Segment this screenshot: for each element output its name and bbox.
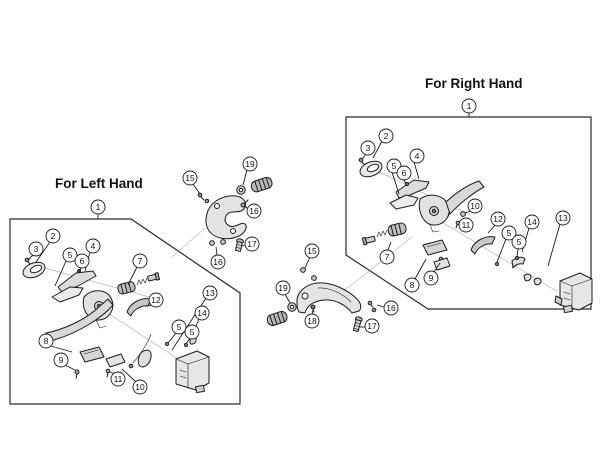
callout-balloon-6: 6 xyxy=(75,254,89,268)
callout-number-14: 14 xyxy=(527,217,537,227)
callout-balloon-10: 10 xyxy=(468,199,482,213)
left-hand-label: For Left Hand xyxy=(55,176,143,191)
cover-part-12 xyxy=(127,299,151,316)
callout-leader-19 xyxy=(285,294,290,303)
callout-number-4: 4 xyxy=(91,241,96,251)
callout-leader-17 xyxy=(242,245,245,246)
callout-leader-19 xyxy=(243,170,247,185)
callout-number-5: 5 xyxy=(507,228,512,238)
barrel-adjuster-part-7 xyxy=(362,222,407,245)
right-group-boundary xyxy=(346,117,591,309)
screw-part-3 xyxy=(359,158,365,165)
callout-number-1: 1 xyxy=(467,101,472,111)
callout-number-6: 6 xyxy=(402,168,407,178)
callout-number-5: 5 xyxy=(177,322,182,332)
callout-number-6: 6 xyxy=(80,256,85,266)
callout-number-2: 2 xyxy=(51,231,56,241)
callout-balloon-4: 4 xyxy=(86,239,100,253)
callout-balloon-11: 11 xyxy=(459,218,473,232)
clamp-bolt-part-17 xyxy=(235,238,244,251)
clamp-band-part xyxy=(297,283,361,313)
shifter-unit-part-13 xyxy=(176,351,209,393)
clamp-band-part xyxy=(206,196,246,239)
callout-number-11: 11 xyxy=(462,220,471,230)
bracket-part-10 xyxy=(106,354,125,367)
nut-part-10 xyxy=(461,212,466,217)
callout-number-3: 3 xyxy=(34,244,39,254)
callout-leader-4 xyxy=(414,162,419,179)
screw-part-9 xyxy=(75,370,79,378)
callout-leader-15 xyxy=(193,184,200,194)
callout-balloon-3: 3 xyxy=(361,141,375,155)
small-lever-part-14 xyxy=(496,257,526,269)
callout-balloon-15: 15 xyxy=(183,171,197,185)
callout-balloon-10: 10 xyxy=(133,380,147,394)
callout-number-1: 1 xyxy=(96,202,101,212)
hook-parts xyxy=(524,274,541,285)
callout-balloon-5: 5 xyxy=(172,320,186,334)
callout-balloon-8: 8 xyxy=(39,334,53,348)
callout-balloon-5: 5 xyxy=(512,235,526,249)
callout-leader-6 xyxy=(404,180,406,184)
callout-balloon-9: 9 xyxy=(54,353,68,367)
cover-part-12 xyxy=(471,237,495,254)
washer-part-19 xyxy=(237,186,245,194)
callout-balloon-16: 16 xyxy=(211,255,225,269)
callout-balloon-8: 8 xyxy=(405,278,419,292)
callout-balloon-7: 7 xyxy=(133,254,147,268)
right-hand-label: For Right Hand xyxy=(425,76,523,91)
callout-balloon-2: 2 xyxy=(46,229,60,243)
callout-leader-5 xyxy=(168,333,176,343)
callout-number-16: 16 xyxy=(213,257,223,267)
callout-balloon-14: 14 xyxy=(525,215,539,229)
callout-balloon-12: 12 xyxy=(149,293,163,307)
callout-leader-8 xyxy=(51,346,72,352)
callout-leader-7 xyxy=(388,242,391,250)
callout-number-8: 8 xyxy=(410,280,415,290)
shifter-unit-part-13 xyxy=(555,273,592,313)
callout-number-13: 13 xyxy=(205,288,215,298)
washer-part-19 xyxy=(288,303,296,311)
lever-cap-part-2 xyxy=(21,259,48,281)
exploded-parts-diagram: For Left Hand For Right Hand xyxy=(0,0,600,450)
callout-number-17: 17 xyxy=(247,239,257,249)
callout-number-10: 10 xyxy=(470,201,480,211)
callout-leader-16 xyxy=(216,247,217,255)
clamp-bolt-part-17 xyxy=(352,316,362,332)
callout-balloon-15: 15 xyxy=(305,244,319,258)
grip-barrel-part-19 xyxy=(266,310,288,327)
callout-number-11: 11 xyxy=(114,374,123,384)
screws-part-16 xyxy=(368,301,376,312)
screw-part-11 xyxy=(106,369,110,377)
hook-guide-part xyxy=(138,350,151,367)
callout-balloon-17: 17 xyxy=(245,237,259,251)
callout-balloon-5: 5 xyxy=(185,325,199,339)
callout-balloon-1: 1 xyxy=(91,200,105,214)
barrel-adjuster-part-7 xyxy=(117,273,160,295)
nuts-part-16b xyxy=(210,240,226,246)
hook-screw xyxy=(129,364,133,368)
callout-balloon-16: 16 xyxy=(247,204,261,218)
callout-balloon-11: 11 xyxy=(111,372,125,386)
callout-leader-12 xyxy=(488,225,495,233)
callout-number-5: 5 xyxy=(68,250,73,260)
callout-balloon-9: 9 xyxy=(424,271,438,285)
callout-layer: 1235467121314558911101234561011789121455… xyxy=(28,99,570,394)
callout-number-13: 13 xyxy=(558,213,568,223)
callout-balloon-14: 14 xyxy=(195,306,209,320)
right-clamp-assembly-drawing xyxy=(266,268,376,332)
callout-balloon-19: 19 xyxy=(276,281,290,295)
callout-leader-3 xyxy=(28,255,33,260)
callout-balloon-12: 12 xyxy=(491,212,505,226)
callout-balloon-2: 2 xyxy=(379,129,393,143)
callout-balloon-1: 1 xyxy=(462,99,476,113)
callout-balloon-17: 17 xyxy=(365,319,379,333)
callout-number-16: 16 xyxy=(249,206,259,216)
callout-number-5: 5 xyxy=(190,327,195,337)
callout-number-16: 16 xyxy=(386,303,396,313)
callout-number-15: 15 xyxy=(185,173,195,183)
callout-balloon-18: 18 xyxy=(305,314,319,328)
callout-number-2: 2 xyxy=(384,131,389,141)
nuts-part-15 xyxy=(301,268,317,281)
callout-balloon-6: 6 xyxy=(397,166,411,180)
callout-number-12: 12 xyxy=(493,214,503,224)
callout-number-8: 8 xyxy=(44,336,49,346)
callout-balloon-13: 13 xyxy=(556,211,570,225)
small-screws-part-15 xyxy=(198,193,209,203)
callout-leader-16 xyxy=(377,305,384,307)
name-plate-part-8 xyxy=(80,347,104,362)
callout-number-18: 18 xyxy=(307,316,317,326)
callout-balloon-16: 16 xyxy=(384,301,398,315)
name-plate-part-8 xyxy=(423,240,447,255)
callout-number-4: 4 xyxy=(415,151,420,161)
right-lever-assembly-drawing xyxy=(345,158,592,312)
callout-number-9: 9 xyxy=(59,355,64,365)
callout-balloon-7: 7 xyxy=(380,250,394,264)
callout-number-17: 17 xyxy=(367,321,377,331)
callout-number-7: 7 xyxy=(385,252,390,262)
callout-number-3: 3 xyxy=(366,143,371,153)
callout-number-9: 9 xyxy=(429,273,434,283)
callout-number-5: 5 xyxy=(517,237,522,247)
lever-body-part xyxy=(419,195,449,232)
parts-diagram-page: For Left Hand For Right Hand xyxy=(0,0,600,450)
callout-leader-5 xyxy=(497,239,506,262)
callout-number-7: 7 xyxy=(138,256,143,266)
left-clamp-axis xyxy=(172,228,205,257)
callout-number-15: 15 xyxy=(307,246,317,256)
callout-leader-5 xyxy=(517,249,518,257)
callout-number-10: 10 xyxy=(135,382,145,392)
callout-balloon-3: 3 xyxy=(29,242,43,256)
callout-number-12: 12 xyxy=(151,295,161,305)
callout-balloon-13: 13 xyxy=(203,286,217,300)
callout-number-14: 14 xyxy=(197,308,207,318)
callout-balloon-19: 19 xyxy=(243,157,257,171)
callout-number-19: 19 xyxy=(245,159,255,169)
callout-leader-15 xyxy=(305,257,310,268)
grip-barrel-part-19 xyxy=(250,176,273,193)
right-clamp-axis xyxy=(345,237,412,290)
callout-number-5: 5 xyxy=(392,161,397,171)
callout-balloon-4: 4 xyxy=(410,149,424,163)
left-clamp-assembly-drawing xyxy=(198,176,273,251)
callout-number-19: 19 xyxy=(278,283,288,293)
callout-leader-9 xyxy=(65,365,75,370)
callout-leader-13 xyxy=(548,224,560,266)
